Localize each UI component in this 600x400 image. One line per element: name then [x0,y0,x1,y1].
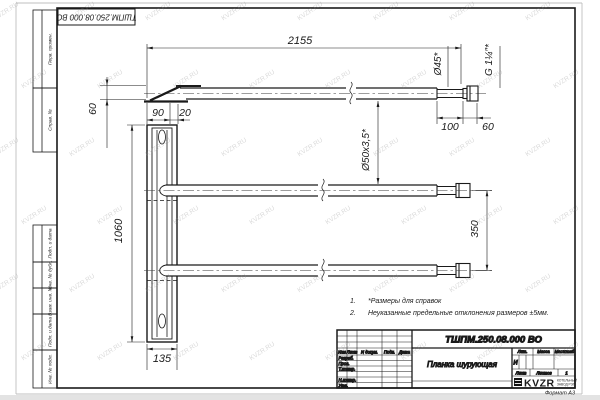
label-tube-spec-text: Ø50х3,5* [361,128,372,172]
margin-stamp-label: Инв. № подл. [48,354,54,384]
margin-stamp-label: Справ. № [48,109,54,131]
sheets-label: Листов [535,371,552,376]
dim-plank-length-text: 1060 [113,218,125,243]
logo-sub-line2: ЗАВОД РЭП [557,383,576,387]
role-tkontr: Т.контр. [339,366,356,371]
dim-end-section-text: 100 [441,121,459,133]
role-razrab: Разраб. [339,355,354,360]
titleblock-part-name: Планка шурующая [427,360,498,369]
label-thread-spec-text: G 1¼″* [483,43,495,76]
scale-label: Масштаб [555,349,575,354]
role-nkontr: Н.контр. [339,377,357,382]
rotated-docnumber-text: ТШПМ.250.08.000 ВО [56,13,137,22]
sheet-label: Лист [515,371,527,376]
dim-plank-width-text: 135 [153,353,172,365]
note-text: Неуказанные предельные отклонения размер… [368,309,549,317]
sheets-value: 1 [565,371,567,376]
mass-label: Масса [537,349,550,354]
drawing-svg: Перв. примен. Справ. № Подп. и дата Инв.… [0,0,600,400]
note-text: *Размеры для справок [368,297,442,305]
role-utv: Утв. [339,383,349,388]
col-docnum: N докум. [361,350,378,355]
dim-blade-height-text: 60 [87,103,99,115]
col-podp: Подп. [384,350,395,355]
dim-total-length-text: 2155 [287,35,313,47]
logo-text: KVZR [524,378,555,390]
lit-value: И [513,361,518,367]
note-number: 2. [349,310,356,317]
margin-stamp-label: Подп. и дата [48,228,54,258]
change-table-header: Изм Лист N докум. Подп. Дата [338,350,411,355]
dim-blade-width-text: 90 [152,107,164,119]
logo-mark-icon [514,378,522,386]
col-list: Лист [346,350,358,355]
dim-blade-lip-text: 20 [178,107,191,119]
label-end-diameter-text: Ø45* [433,51,444,76]
margin-stamp-label: Взам. инв. № [48,286,54,316]
margin-stamp-label: Перв. примен. [48,33,54,65]
note-number: 1. [350,298,356,305]
dim-tube-spacing-text: 350 [469,220,481,238]
lit-label: Лит. [517,349,528,354]
margin-stamp-label: Инв. № дубл. [48,260,54,290]
paper-shadow-bottom [0,395,600,400]
dim-thread-length-text: 60 [482,121,494,133]
drawing-sheet: Перв. примен. Справ. № Подп. и дата Инв.… [0,0,600,400]
col-izm: Изм [338,350,346,355]
format-label: Формат А3 [545,391,576,397]
col-data: Дата [398,350,411,355]
margin-stamp-label: Подп. и дата [48,317,54,347]
role-prov: Пров. [339,361,350,366]
titleblock-doc-number: ТШПМ.250.08.000 ВО [445,335,542,346]
